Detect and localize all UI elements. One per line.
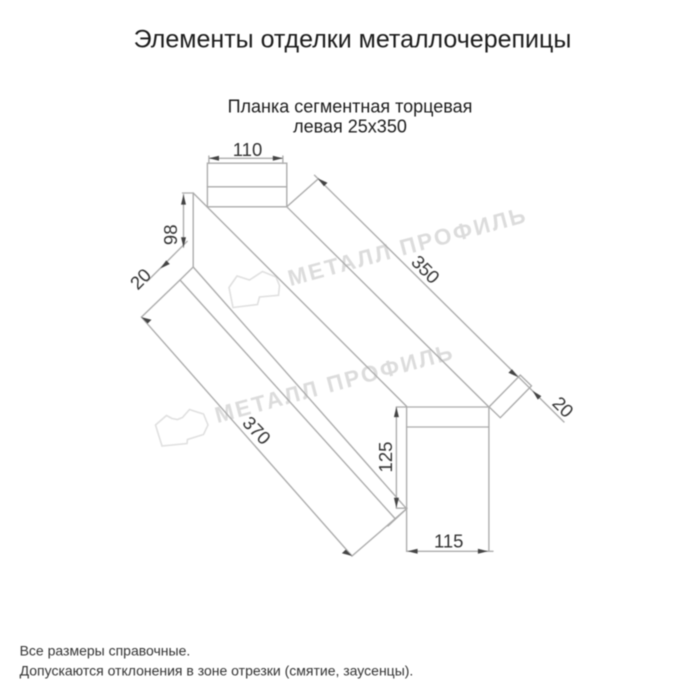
svg-text:Допускаются отклонения в зоне: Допускаются отклонения в зоне отрезки (с… <box>20 663 414 679</box>
svg-text:Планка сегментная торцевая: Планка сегментная торцевая <box>228 96 473 116</box>
svg-text:98: 98 <box>160 225 181 246</box>
svg-text:Элементы отделки металлочерепи: Элементы отделки металлочерепицы <box>134 26 572 54</box>
svg-text:125: 125 <box>375 442 396 473</box>
svg-text:110: 110 <box>233 139 263 160</box>
svg-text:левая 25х350: левая 25х350 <box>293 117 407 137</box>
svg-text:Все размеры справочные.: Все размеры справочные. <box>20 643 191 659</box>
svg-text:115: 115 <box>434 530 464 551</box>
